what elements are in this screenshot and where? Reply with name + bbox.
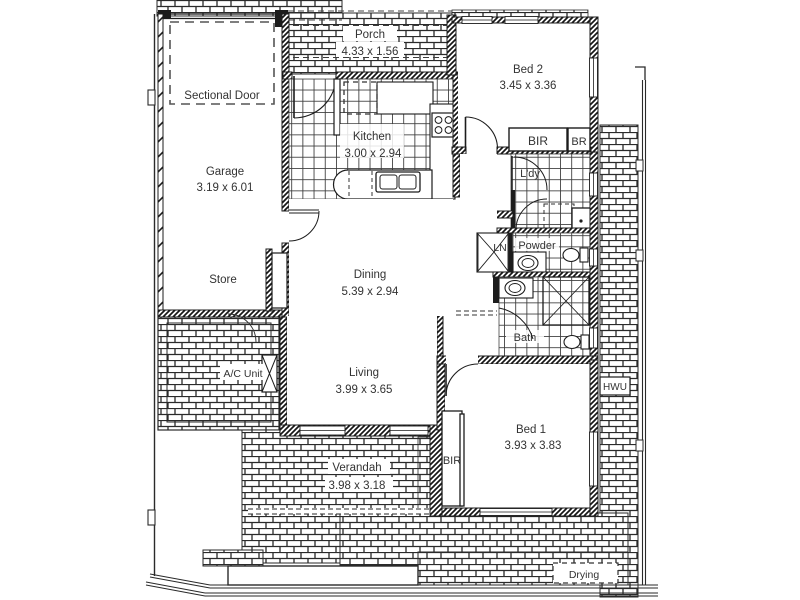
svg-text:Living: Living (349, 367, 379, 379)
svg-text:A/C Unit: A/C Unit (223, 368, 262, 380)
svg-text:3.98 x 3.18: 3.98 x 3.18 (329, 480, 386, 492)
svg-text:3.45 x 3.36: 3.45 x 3.36 (500, 80, 557, 92)
svg-text:Sectional Door: Sectional Door (184, 90, 260, 102)
svg-text:3.19 x 6.01: 3.19 x 6.01 (197, 182, 254, 194)
svg-text:Verandah: Verandah (332, 462, 381, 474)
svg-text:3.99 x 3.65: 3.99 x 3.65 (336, 384, 393, 396)
svg-text:BIR: BIR (528, 134, 548, 148)
svg-text:Bed 1: Bed 1 (516, 424, 546, 436)
svg-text:Kitchen: Kitchen (353, 131, 391, 143)
svg-text:Drying: Drying (569, 569, 600, 581)
svg-text:BR: BR (571, 136, 586, 148)
svg-text:LN: LN (493, 242, 506, 254)
svg-text:Garage: Garage (206, 166, 244, 178)
svg-text:Dining: Dining (354, 269, 387, 281)
svg-text:5.39 x 2.94: 5.39 x 2.94 (342, 286, 400, 298)
svg-text:L'dy: L'dy (520, 168, 540, 180)
svg-text:Powder: Powder (518, 240, 556, 252)
svg-text:Porch: Porch (355, 29, 385, 41)
svg-text:BIR: BIR (443, 455, 461, 467)
svg-text:3.93 x 3.83: 3.93 x 3.83 (505, 440, 562, 452)
svg-text:4.33 x 1.56: 4.33 x 1.56 (342, 46, 399, 58)
svg-text:3.00 x 2.94: 3.00 x 2.94 (345, 148, 403, 160)
svg-text:Store: Store (209, 274, 237, 286)
svg-text:Bed 2: Bed 2 (513, 64, 543, 76)
svg-text:HWU: HWU (603, 382, 627, 393)
